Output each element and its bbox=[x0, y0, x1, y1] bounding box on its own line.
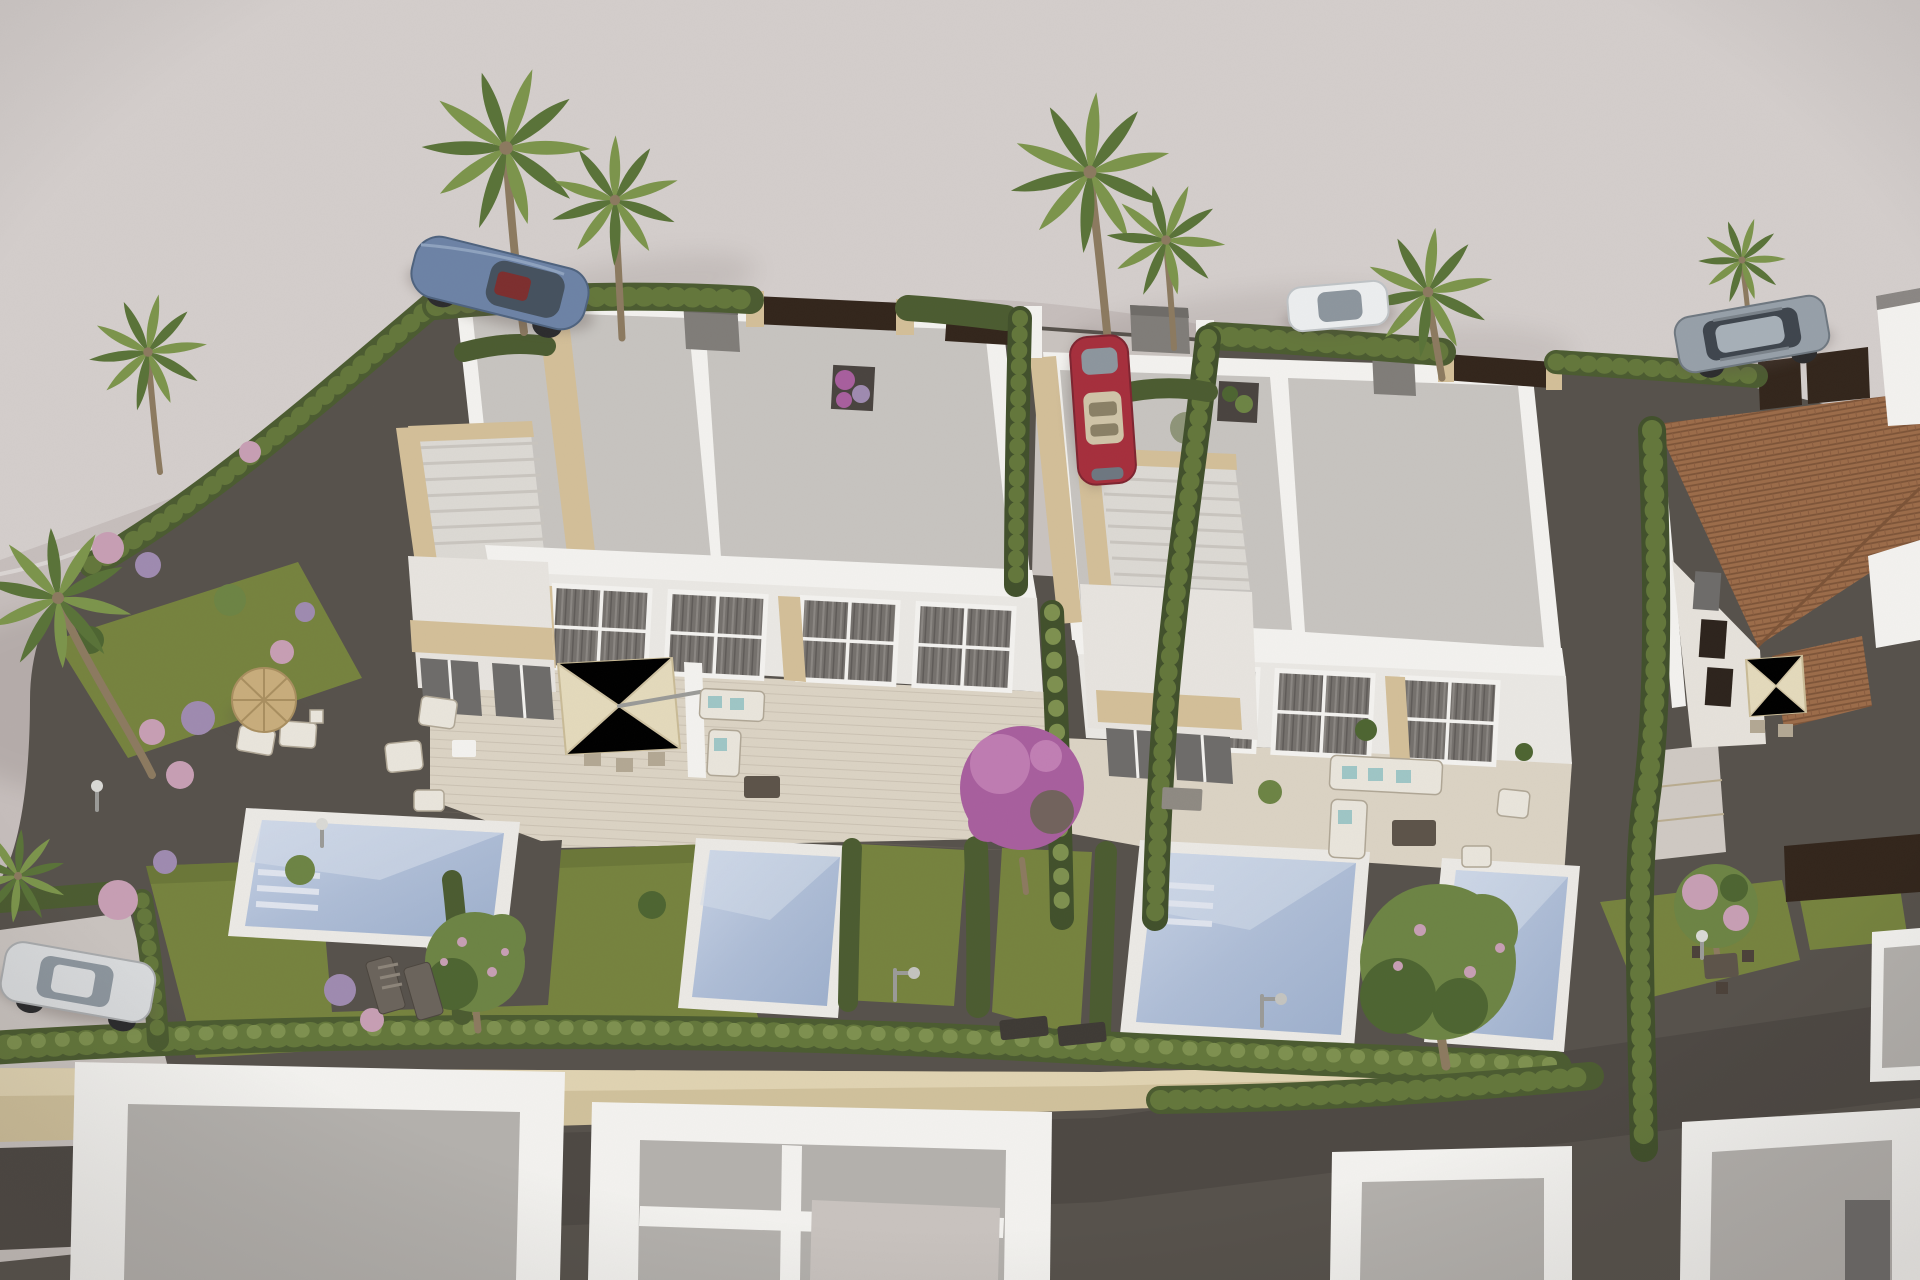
vignette bbox=[0, 0, 1920, 1280]
render-canvas bbox=[0, 0, 1920, 1280]
aerial-render bbox=[0, 0, 1920, 1280]
